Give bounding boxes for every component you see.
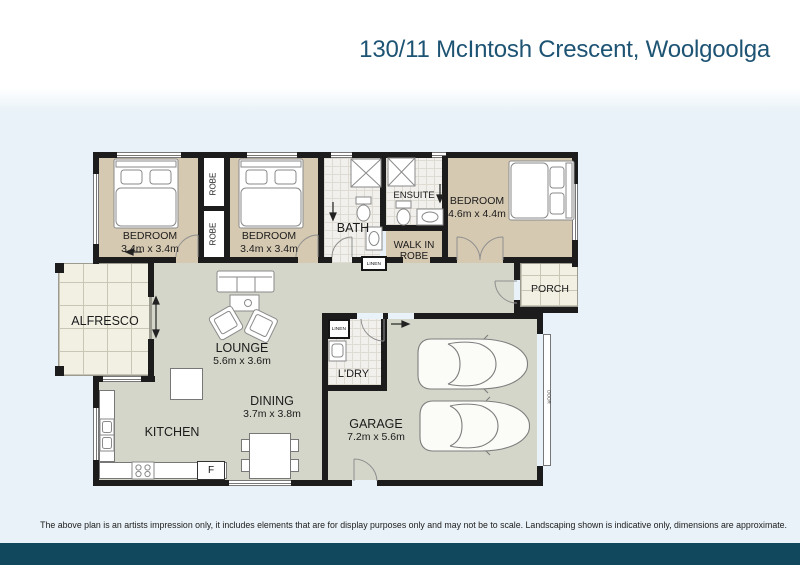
window [117, 152, 181, 158]
room-label-robe1: ROBE [210, 173, 219, 196]
room-label-lounge: LOUNGE [192, 341, 292, 355]
wall-segment [181, 152, 247, 158]
disclaimer-text: The above plan is an artists impression … [40, 520, 787, 530]
fridge-label: F [208, 465, 214, 476]
wall-segment [514, 263, 520, 280]
fridge-space: F [197, 461, 225, 480]
wall-segment [537, 466, 543, 486]
wall-segment [318, 156, 324, 263]
wall-segment [324, 257, 332, 263]
floor-plan: LINEN LINEN F [0, 0, 800, 565]
wall-segment [446, 152, 578, 158]
linen-cupboard-hall: LINEN [361, 256, 387, 271]
wall-segment [377, 480, 543, 486]
room-hall [322, 263, 514, 313]
footer-bar [0, 543, 800, 565]
room-dims-lounge: 5.6m x 3.6m [192, 356, 292, 368]
dining-table [249, 433, 291, 479]
room-label-bedroom2: BEDROOM [224, 231, 314, 243]
room-dims-bedroom3: 4.6m x 4.4m [427, 209, 527, 221]
window [229, 480, 291, 486]
linen-label: LINEN [367, 261, 381, 266]
dining-chair [241, 459, 250, 472]
wall-segment [198, 257, 298, 263]
wall-segment [572, 152, 578, 184]
window [93, 174, 99, 244]
window [247, 152, 297, 158]
room-label-garage: GARAGE [326, 417, 426, 431]
wall-segment [324, 385, 387, 391]
room-label-alfresco: ALFRESCO [58, 314, 152, 328]
room-bath [324, 158, 380, 263]
room-label-dining: DINING [222, 394, 322, 408]
wall-segment [414, 313, 543, 319]
room-label-bath: BATH [324, 221, 382, 235]
linen-cupboard-laundry: LINEN [328, 319, 350, 339]
wall-segment [537, 313, 543, 334]
page: 130/11 McIntosh Crescent, Woolgoolga [0, 0, 800, 565]
wall-segment [297, 152, 331, 158]
wall-segment [514, 300, 520, 307]
room-label-walk-in-robe: WALK IN ROBE [390, 240, 438, 262]
dining-chair [241, 439, 250, 452]
linen-label: LINEN [332, 327, 346, 332]
wall-segment [352, 152, 432, 158]
room-label-robe2: ROBE [210, 223, 219, 246]
room-dims-dining: 3.7m x 3.8m [222, 409, 322, 421]
wall-segment [198, 206, 230, 211]
wall-segment [148, 339, 154, 376]
wall-segment [381, 319, 387, 389]
room-garage [387, 319, 537, 480]
wall-segment [93, 480, 229, 486]
wall-segment [148, 263, 154, 297]
room-label-porch: PORCH [521, 284, 579, 296]
dining-chair [290, 439, 299, 452]
wall-segment [141, 376, 155, 382]
window [103, 376, 141, 382]
alfresco-post [55, 366, 64, 376]
wall-segment [93, 152, 99, 174]
wall-segment [514, 307, 578, 313]
room-label-laundry: L'DRY [326, 368, 381, 380]
wall-segment [93, 257, 176, 263]
dining-chair [290, 459, 299, 472]
room-dims-bedroom1: 3.4m x 3.4m [100, 244, 200, 256]
window [331, 152, 352, 158]
room-label-bedroom1: BEDROOM [100, 231, 200, 243]
kitchen-bench [170, 368, 203, 400]
wall-segment [352, 257, 361, 263]
window [572, 184, 578, 240]
alfresco-post [55, 263, 64, 273]
room-label-kitchen: KITCHEN [122, 425, 222, 439]
room-dims-garage: 7.2m x 5.6m [326, 432, 426, 444]
room-dims-bedroom2: 3.4m x 3.4m [224, 244, 314, 256]
garage-door-label: DOOR [546, 390, 551, 404]
wall-segment [380, 225, 448, 231]
room-label-ensuite: ENSUITE [384, 191, 444, 202]
kitchen-counter-left [99, 390, 115, 462]
